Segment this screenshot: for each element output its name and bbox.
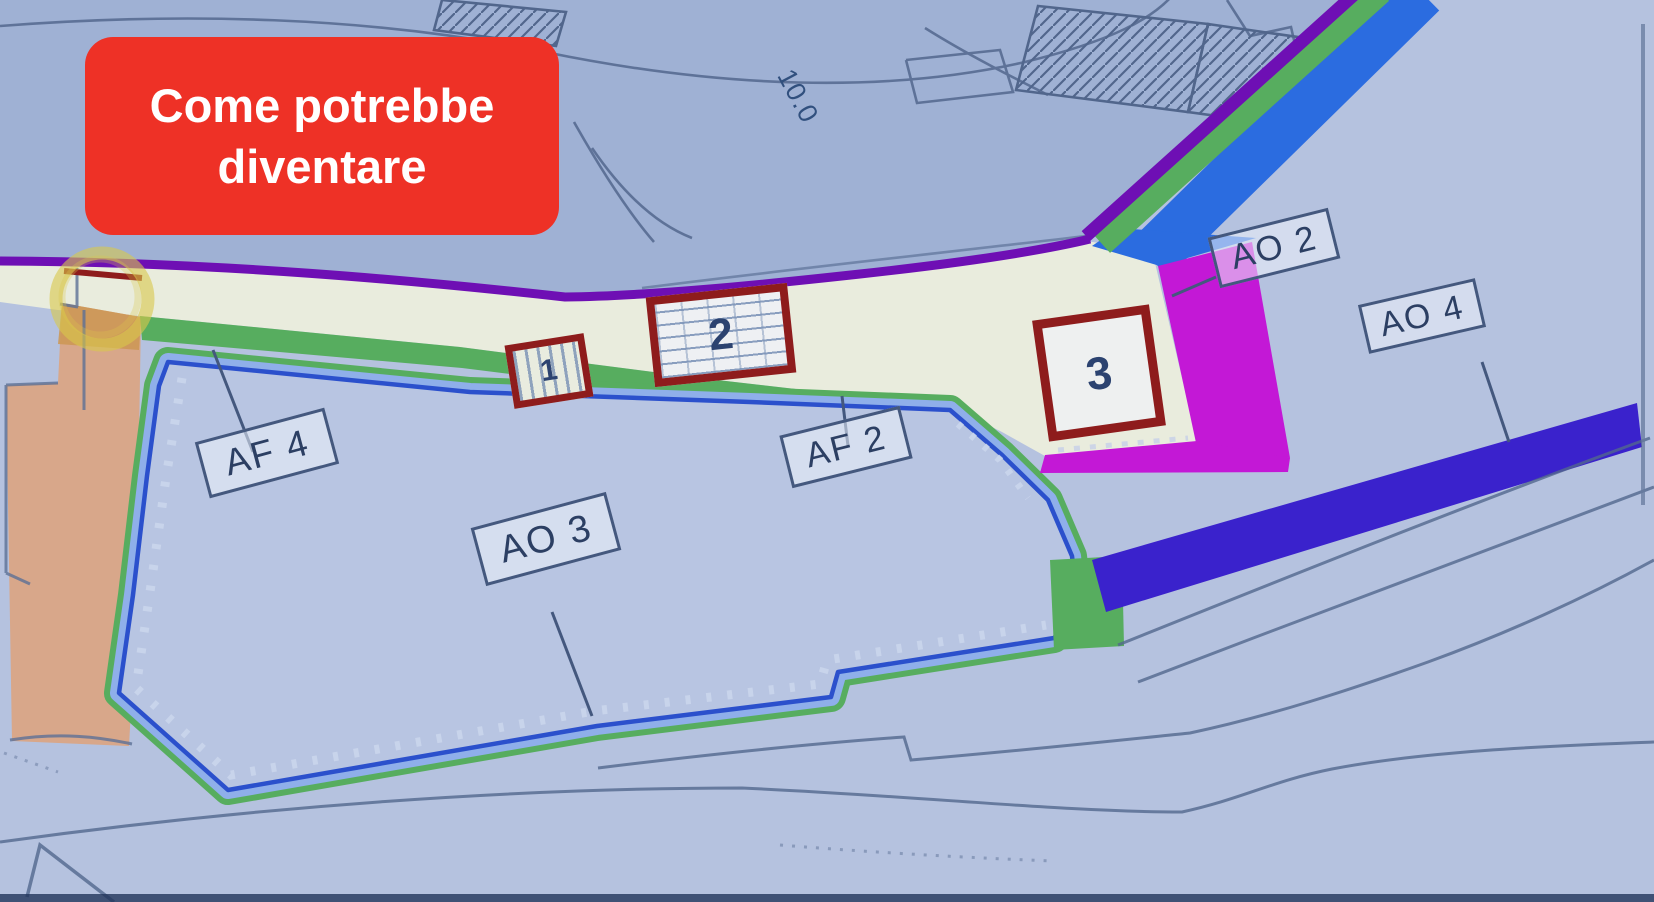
building-3-number: 3 xyxy=(1083,344,1116,401)
building-3: 3 xyxy=(1032,304,1166,441)
bottom-edge-shadow xyxy=(0,894,1654,902)
annotation-text: Come potrebbe diventare xyxy=(119,75,525,197)
building-2-number: 2 xyxy=(706,309,736,361)
building-2: 2 xyxy=(646,283,797,387)
plan-map: 10.0 1 2 3 AF 4 AO 3 AF 2 AO 2 AO 4 Come… xyxy=(0,0,1654,902)
building-1: 1 xyxy=(504,333,593,409)
annotation-label: Come potrebbe diventare xyxy=(85,37,559,235)
building-1-number: 1 xyxy=(538,353,560,389)
